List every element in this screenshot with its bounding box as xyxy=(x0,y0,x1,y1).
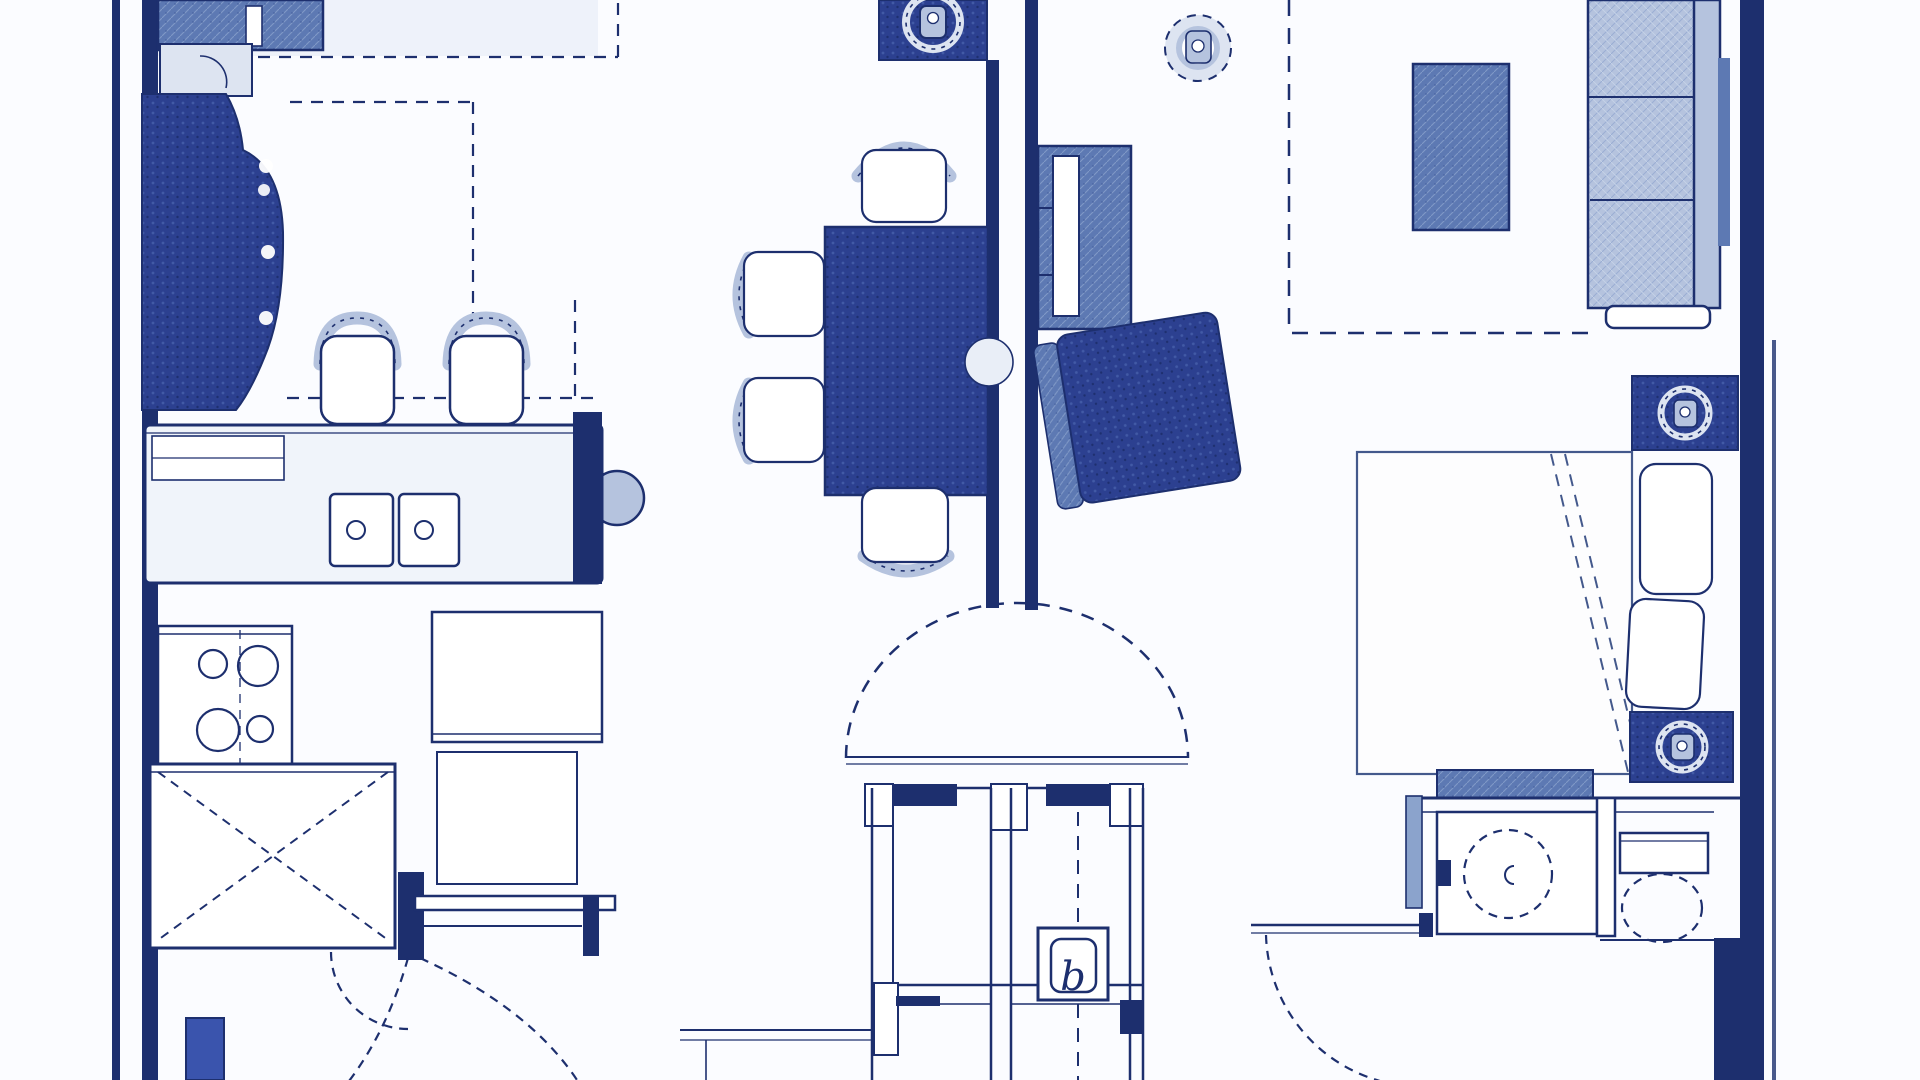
refrigerator-handle xyxy=(246,6,262,46)
closet-header-wall xyxy=(893,784,957,806)
vanity-backsplash xyxy=(1437,770,1593,798)
mechanical-closet-b: b xyxy=(1038,928,1108,1000)
bar-edge-notch xyxy=(261,245,275,259)
vanity-sink xyxy=(1437,812,1597,934)
wall-end-cap xyxy=(874,983,898,1055)
floor-plan-drawing: b xyxy=(0,0,1920,1080)
door-jamb-block xyxy=(1120,1000,1144,1034)
closet-divider-wall xyxy=(991,788,1011,1080)
door-jamb xyxy=(1419,913,1433,937)
dining-area xyxy=(739,0,1013,571)
corner-cabinet xyxy=(160,44,252,96)
mechanical-closet-label: b xyxy=(1060,954,1086,1000)
door-jamb-panel xyxy=(1406,796,1422,908)
range-cooktop xyxy=(158,626,292,768)
closet-right-wall xyxy=(1130,788,1143,1080)
sink-basin xyxy=(330,494,393,566)
wall-sconce-notch xyxy=(965,338,1013,386)
bar-edge-notch xyxy=(258,184,270,196)
door-swing-arc xyxy=(1266,935,1380,1080)
door-jamb xyxy=(1110,784,1143,826)
kitchen xyxy=(142,0,644,1080)
bedroom xyxy=(1251,376,1738,1080)
refrigerator xyxy=(158,0,323,50)
living-partition-wall xyxy=(1025,0,1038,610)
sofa-back-panel xyxy=(1718,58,1730,246)
nightstand-light-top xyxy=(1632,376,1738,450)
ceiling-fan-light xyxy=(1165,15,1231,81)
mattress xyxy=(1357,452,1632,774)
wall-return xyxy=(896,996,940,1006)
right-exterior-wall xyxy=(1740,0,1764,1080)
bathroom-wall-stub xyxy=(1714,938,1740,1080)
bar-edge-notch xyxy=(259,159,273,173)
upper-cabinets-dashed-outline xyxy=(258,0,618,453)
dining-chair-left xyxy=(739,378,824,462)
entry-foyer: b xyxy=(680,603,1188,1080)
toilet-bowl xyxy=(1622,874,1702,942)
storage-cabinet xyxy=(437,752,577,884)
door-jamb xyxy=(865,784,893,826)
utility-closet-x xyxy=(150,764,395,948)
bathroom xyxy=(1406,770,1740,942)
dining-chair-top xyxy=(858,148,950,222)
toilet xyxy=(1620,833,1708,942)
right-exterior-face-line xyxy=(1772,340,1776,1080)
dining-chair-left xyxy=(739,252,824,336)
entry-door-swing-arcs xyxy=(326,952,590,1080)
pillow xyxy=(1640,464,1712,594)
sofa-armrest xyxy=(1606,306,1710,328)
counter-with-double-sink xyxy=(145,412,644,584)
pillow xyxy=(1625,598,1705,710)
ceiling-light-fixture xyxy=(879,0,987,60)
bathroom-divider-wall xyxy=(1597,798,1615,936)
armchair xyxy=(1032,311,1243,510)
door-jamb-stub xyxy=(398,872,424,960)
dining-chair-bottom xyxy=(862,488,948,571)
counter-end-panel xyxy=(573,412,602,584)
left-exterior-wall-line xyxy=(112,0,120,1080)
wall-shelf xyxy=(415,896,615,956)
entry-closets: b xyxy=(865,784,1144,1080)
bedroom-door xyxy=(1251,913,1433,1080)
left-wall-door-panel xyxy=(186,1018,224,1080)
floor-plan-canvas: b xyxy=(0,0,1920,1080)
arched-alcove-dome xyxy=(846,603,1188,758)
lower-corridor-lines xyxy=(680,1030,872,1080)
coffee-table xyxy=(1413,64,1509,230)
dining-table xyxy=(825,227,988,495)
closet-header-wall xyxy=(1046,784,1110,806)
sink-basin xyxy=(399,494,459,566)
nightstand-light-bottom xyxy=(1630,712,1733,782)
bar-edge-notch xyxy=(259,311,273,325)
toilet-tank xyxy=(1620,833,1708,873)
faucet xyxy=(1437,860,1451,886)
sofa-backrest xyxy=(1694,0,1720,308)
three-seat-sofa xyxy=(1588,0,1730,328)
center-jamb xyxy=(991,784,1027,830)
tv-screen xyxy=(1053,156,1079,316)
media-console-with-tv xyxy=(1038,146,1131,329)
living-area xyxy=(1032,0,1730,510)
work-table xyxy=(432,612,602,742)
